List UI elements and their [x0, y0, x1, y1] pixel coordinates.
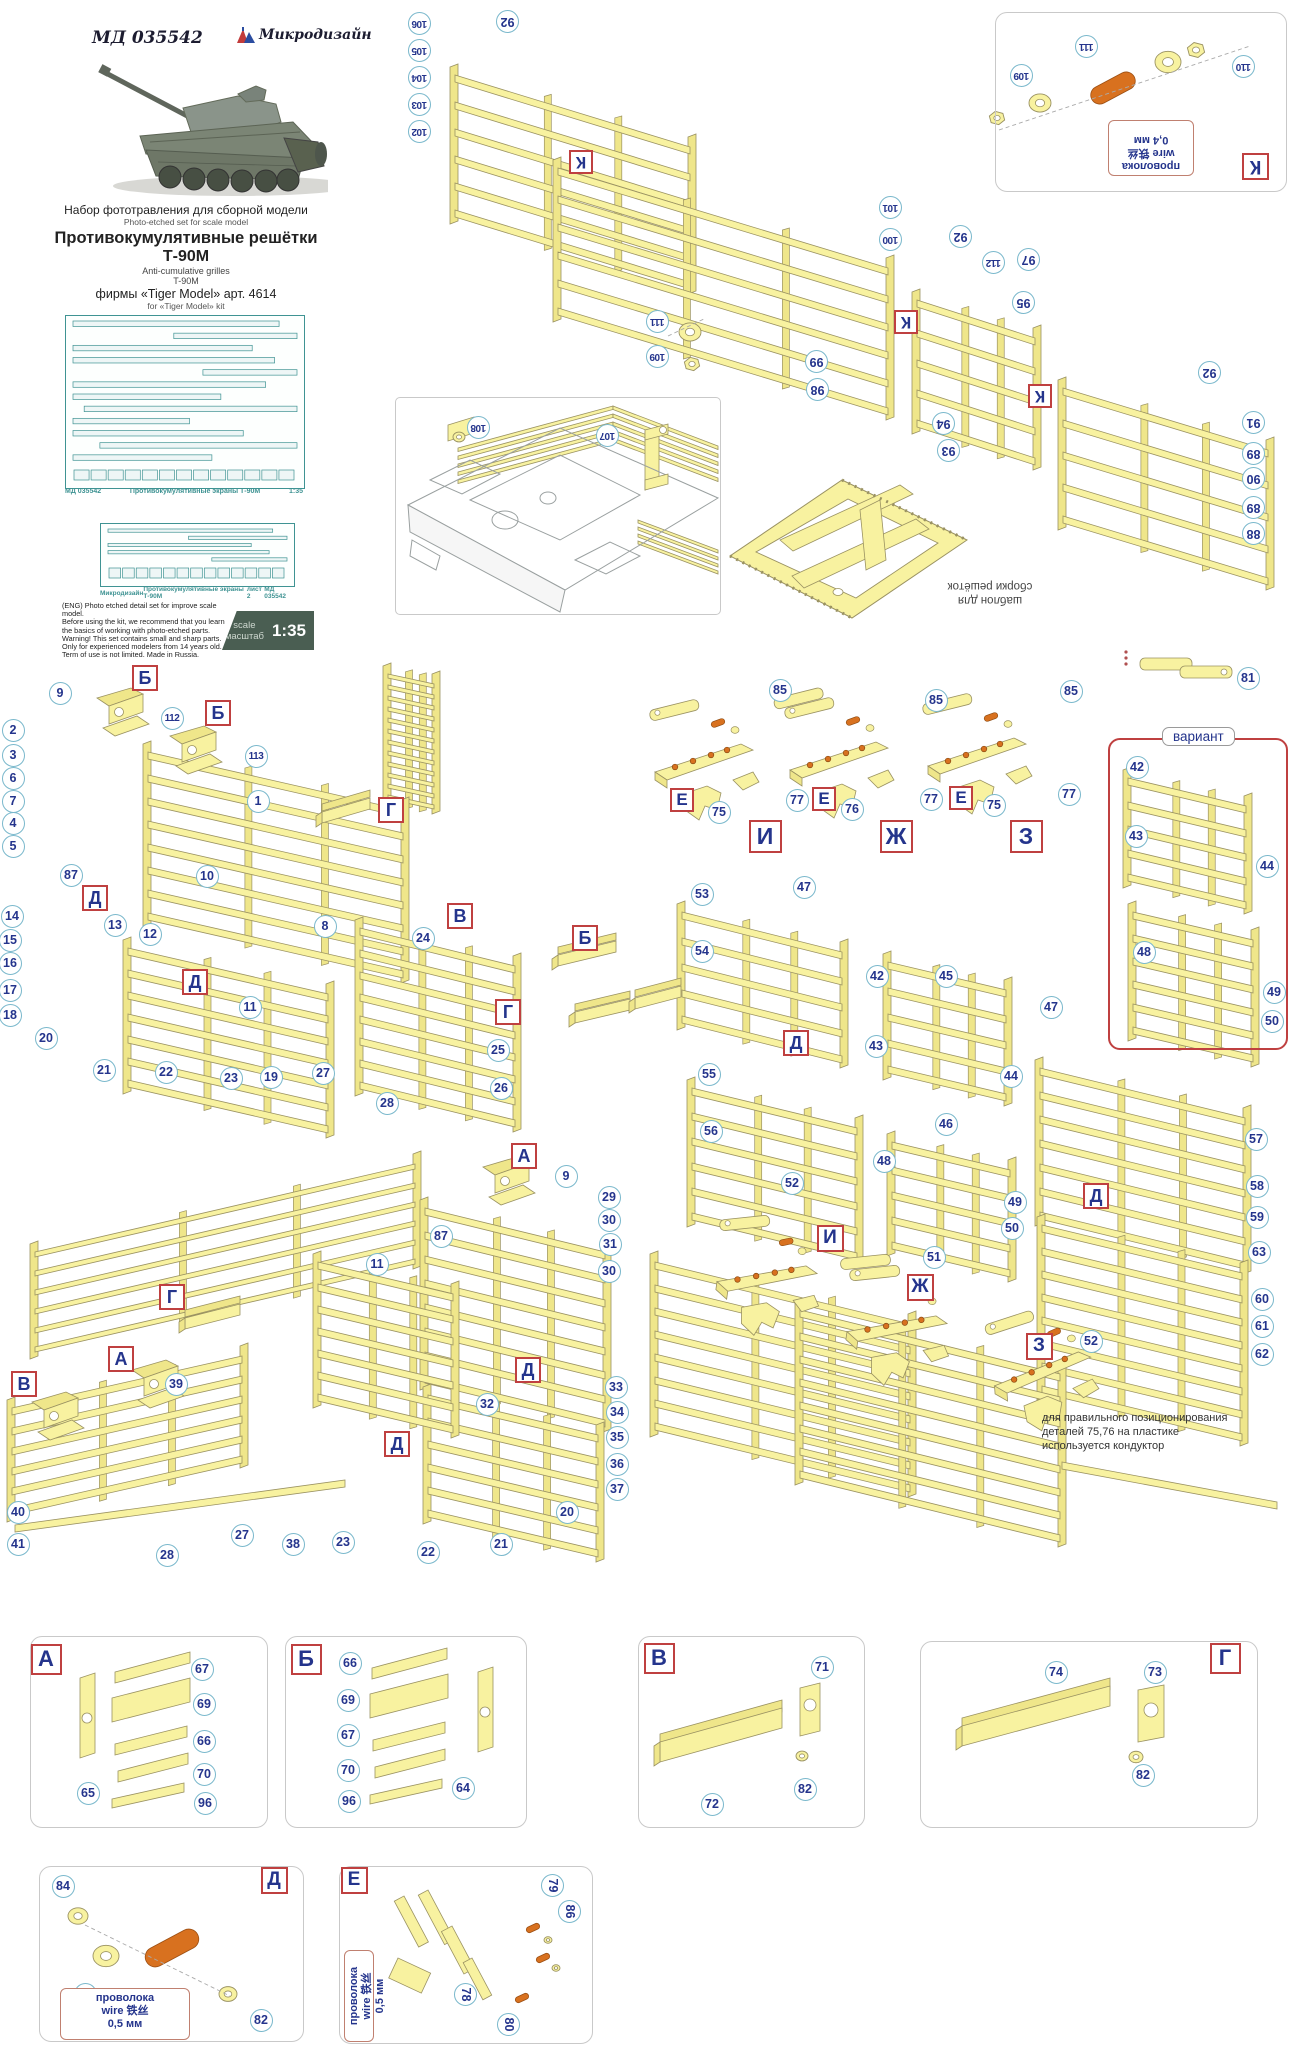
fret-part: [73, 358, 275, 363]
fret-2-code: МД 035542: [264, 586, 293, 600]
part-callout-43: 43: [1125, 825, 1148, 848]
fret-art: [101, 524, 294, 586]
fret-2-sheet: лист 2: [247, 586, 264, 600]
fret-part: [123, 568, 135, 578]
grille-connector: [804, 1107, 811, 1253]
grille-connector: [544, 1414, 551, 1550]
grille-slat: [692, 1138, 857, 1185]
assembly-letter-Е: Е: [949, 786, 973, 810]
part-callout-97: 97: [1017, 248, 1040, 271]
fret-part: [262, 470, 277, 480]
assembly-letter-Г: Г: [1210, 1643, 1241, 1674]
hex-nut: [684, 357, 699, 370]
assembly-letter-В: В: [644, 1643, 675, 1674]
part-callout-112: 112: [161, 707, 184, 730]
part-callout-82: 82: [794, 1778, 817, 1801]
part-callout-61: 61: [1251, 1315, 1274, 1338]
beam-end: [569, 1012, 575, 1027]
part-callout-75: 75: [983, 794, 1006, 817]
part-callout-109: 109: [1010, 64, 1033, 87]
part-shape: [1006, 766, 1032, 784]
fret-part: [142, 470, 157, 480]
part-callout-70: 70: [193, 1763, 216, 1786]
part-callout-27: 27: [312, 1062, 335, 1085]
part-callout-96: 96: [338, 1790, 361, 1813]
part-callout-78: 78: [454, 1983, 477, 2006]
kit-line-ru: фирмы «Tiger Model» арт. 4614: [42, 287, 330, 301]
part-callout-108: 108: [467, 416, 490, 439]
part-callout-59: 59: [1246, 1206, 1269, 1229]
grille-slat: [682, 990, 842, 1037]
fret-part: [228, 470, 243, 480]
tank-photo: [88, 46, 328, 201]
part-callout-42: 42: [1126, 756, 1149, 779]
part-callout-11: 11: [239, 996, 262, 1019]
grille-slat: [888, 1014, 1006, 1049]
part-callout-69: 69: [193, 1693, 216, 1716]
variant-box: [1108, 738, 1288, 1050]
fret-part: [73, 382, 266, 387]
fret-part: [159, 470, 174, 480]
assembly-letter-Е: Е: [341, 1867, 368, 1894]
grille-slat: [1063, 516, 1268, 585]
grille-slat: [1040, 1092, 1245, 1149]
part-callout-21: 21: [490, 1533, 513, 1556]
part-callout-36: 36: [606, 1453, 629, 1476]
grille-assembly: [1035, 1057, 1251, 1274]
part-callout-20: 20: [35, 1027, 58, 1050]
part-callout-106: 106: [408, 12, 431, 35]
part-callout-51: 51: [923, 1246, 946, 1269]
assembly-letter-К: К: [1028, 384, 1052, 408]
fret-part: [109, 568, 121, 578]
part-callout-85: 85: [1060, 680, 1083, 703]
part-callout-89: 89: [1242, 496, 1265, 519]
instruction-sheet: МД 035542 Микродизайн Набор фототравлени…: [0, 0, 1289, 2048]
part-callout-73: 73: [1144, 1661, 1167, 1684]
grille-slat: [1063, 484, 1268, 553]
part-callout-76: 76: [841, 798, 864, 821]
part-callout-93: 93: [937, 439, 960, 462]
assembly-letter-Б: Б: [291, 1644, 322, 1675]
grille-slat: [360, 972, 515, 1017]
fret-part: [211, 470, 226, 480]
part-callout-2: 2: [2, 719, 25, 742]
grille-end-cap: [855, 1115, 863, 1265]
part-callout-28: 28: [376, 1092, 399, 1115]
assembly-letter-Д: Д: [182, 969, 208, 995]
brand-mark-icon: [236, 26, 256, 44]
assembly-letter-В: В: [11, 1371, 37, 1397]
fret-2-brand: Микродизайн: [100, 590, 143, 597]
part-callout-102: 102: [408, 120, 431, 143]
assembly-letter-Д: Д: [384, 1431, 410, 1457]
grille-slat: [888, 1040, 1006, 1075]
assembly-letter-Д: Д: [82, 885, 108, 911]
part-callout-82: 82: [1132, 1764, 1155, 1787]
grille-end-cap: [355, 917, 363, 1096]
part-callout-87: 87: [60, 864, 83, 887]
part-callout-49: 49: [1004, 1191, 1027, 1214]
fret-1-code: МД 035542: [65, 488, 101, 495]
wire-04-label: проволока wire 铁丝 0,4 мм: [1108, 120, 1194, 176]
part-shape: [928, 738, 1026, 774]
part-callout-66: 66: [193, 1730, 216, 1753]
grille-slat: [682, 1016, 842, 1063]
grille-slat: [888, 988, 1006, 1023]
grille-assembly: [15, 1480, 345, 1532]
beam-part: [179, 1296, 240, 1333]
fret-part: [73, 345, 252, 350]
part-callout-50: 50: [1001, 1217, 1024, 1240]
grille-assembly: [1062, 1462, 1277, 1509]
part-callout-79: 79: [541, 1874, 564, 1897]
part-callout-10: 10: [196, 865, 219, 888]
part-callout-19: 19: [260, 1066, 283, 1089]
part-callout-56: 56: [700, 1120, 723, 1143]
part-callout-22: 22: [417, 1541, 440, 1564]
fret-part: [136, 568, 148, 578]
assembly-letter-Е: Е: [670, 788, 694, 812]
assembly-letter-Д: Д: [515, 1357, 541, 1383]
assembly-letter-З: З: [1026, 1333, 1053, 1360]
fret-part: [150, 568, 162, 578]
grille-end-cap: [450, 64, 458, 224]
grille-slat: [360, 994, 515, 1039]
grille-end-cap: [143, 741, 151, 927]
fret-1-title: Противокумулятивные экраны Т-90М: [130, 488, 260, 495]
part-callout-20: 20: [556, 1501, 579, 1524]
part-shape: [868, 770, 894, 788]
assembly-letter-З: З: [1010, 820, 1043, 853]
part-callout-41: 41: [7, 1533, 30, 1556]
grille-assembly: [887, 1131, 1016, 1282]
part-callout-45: 45: [935, 965, 958, 988]
part-callout-63: 63: [1248, 1241, 1271, 1264]
grille-slat: [35, 1202, 415, 1295]
part-callout-69: 69: [337, 1689, 360, 1712]
part-callout-88: 88: [1242, 522, 1265, 545]
part-callout-17: 17: [0, 979, 22, 1002]
part-callout-23: 23: [332, 1531, 355, 1554]
grille-assembly: [677, 901, 848, 1068]
fret-part: [125, 470, 140, 480]
fret-part: [272, 568, 284, 578]
kit-line-en: for «Tiger Model» kit: [42, 301, 330, 311]
fret-part: [218, 568, 230, 578]
grille-slat: [35, 1164, 415, 1257]
product-code: МД 035542: [92, 28, 203, 48]
part-callout-103: 103: [408, 93, 431, 116]
assembly-letter-Ж: Ж: [880, 820, 913, 853]
grille-end-cap: [886, 255, 894, 420]
scale-badge: scale масштаб 1:35: [222, 611, 314, 650]
fret-part: [174, 333, 297, 338]
part-callout-71: 71: [811, 1656, 834, 1679]
assembly-letter-А: А: [511, 1143, 537, 1169]
part-callout-27: 27: [231, 1524, 254, 1547]
part-callout-12: 12: [139, 923, 162, 946]
fret-part: [108, 529, 273, 532]
grille-slat: [1063, 420, 1268, 489]
assembly-letter-А: А: [31, 1644, 62, 1675]
part-callout-48: 48: [873, 1150, 896, 1173]
assembly-letter-И: И: [749, 820, 782, 853]
part-callout-98: 98: [806, 378, 829, 401]
eng-warning-text: (ENG) Photo etched detail set for improv…: [62, 602, 237, 659]
part-callout-77: 77: [920, 788, 943, 811]
wire-05-label: проволока wire 铁丝 0,5 мм: [60, 1988, 190, 2040]
fret-part: [108, 551, 269, 554]
fret-part: [245, 568, 257, 578]
grille-connector: [544, 94, 551, 250]
part-callout-9: 9: [49, 682, 72, 705]
fret-part: [279, 470, 294, 480]
grille-assembly: [1058, 377, 1274, 590]
fret-part: [108, 470, 123, 480]
part-callout-43: 43: [865, 1035, 888, 1058]
part-callout-52: 52: [781, 1172, 804, 1195]
part-callout-95: 95: [1012, 291, 1035, 314]
part-callout-46: 46: [935, 1113, 958, 1136]
part-callout-37: 37: [606, 1478, 629, 1501]
part-callout-87: 87: [430, 1225, 453, 1248]
part-callout-72: 72: [701, 1793, 724, 1816]
part-callout-96: 96: [194, 1792, 217, 1815]
part-callout-58: 58: [1246, 1175, 1269, 1198]
grille-end-cap: [650, 1251, 658, 1437]
hinge-assembly: [1124, 650, 1232, 678]
part-callout-30: 30: [598, 1209, 621, 1232]
assembly-letter-Д: Д: [1083, 1183, 1109, 1209]
beam-end: [552, 955, 558, 970]
part-callout-14: 14: [1, 905, 24, 928]
scale-label-ru: масштаб: [225, 631, 264, 642]
grille-assembly: [30, 1151, 421, 1359]
assembly-letter-Д: Д: [261, 1867, 288, 1894]
grille-connector: [782, 228, 789, 389]
part-callout-67: 67: [191, 1658, 214, 1681]
part-callout-80: 80: [497, 2013, 520, 2036]
part-callout-92: 92: [949, 225, 972, 248]
part-callout-111: 111: [1075, 35, 1098, 58]
fret-1-scale: 1:35: [289, 488, 303, 495]
subtitle-en: Anti-cumulative grilles: [42, 266, 330, 276]
part-callout-31: 31: [599, 1233, 622, 1256]
part-callout-53: 53: [691, 883, 714, 906]
part-callout-85: 85: [769, 679, 792, 702]
part-callout-34: 34: [606, 1401, 629, 1424]
grille-slat: [35, 1183, 415, 1276]
assembly-letter-Д: Д: [783, 1030, 809, 1056]
part-callout-111: 111: [646, 310, 669, 333]
grille-slat: [15, 1480, 345, 1532]
part-callout-33: 33: [605, 1376, 628, 1399]
part-callout-38: 38: [282, 1533, 305, 1556]
fret-part: [108, 543, 251, 546]
grille-end-cap: [30, 1241, 38, 1359]
part-callout-1: 1: [247, 790, 270, 813]
fret-2-caption: Микродизайн Противокумулятивные экраны Т…: [100, 586, 293, 600]
grille-slat: [428, 1441, 598, 1488]
part-callout-75: 75: [708, 801, 731, 824]
assembly-letter-Б: Б: [132, 665, 158, 691]
part-callout-5: 5: [2, 835, 25, 858]
grille-assembly: [123, 937, 334, 1138]
bracket-part: [97, 688, 149, 736]
part-callout-62: 62: [1251, 1343, 1274, 1366]
grille-assembly: [912, 289, 1041, 470]
assembly-letter-Б: Б: [572, 925, 598, 951]
grille-end-cap: [687, 1077, 695, 1227]
wire-05-label-vertical: проволока wire 铁丝 0,5 мм: [344, 1950, 374, 2042]
fret-part: [177, 568, 189, 578]
part-callout-23: 23: [220, 1067, 243, 1090]
grille-assembly: [383, 663, 440, 814]
part-callout-109: 109: [646, 345, 669, 368]
part-callout-18: 18: [0, 1004, 22, 1027]
fret-part: [212, 558, 287, 561]
part-callout-52: 52: [1080, 1330, 1103, 1353]
part-callout-44: 44: [1256, 855, 1279, 878]
part-callout-100: 100: [879, 228, 902, 251]
part-callout-99: 99: [805, 350, 828, 373]
grille-slat: [558, 280, 888, 387]
grille-slat: [1063, 452, 1268, 521]
fret-sheet-1: [65, 315, 305, 489]
grille-slat: [558, 252, 888, 359]
fret-sheet-2: [100, 523, 295, 587]
jig-note: для правильного позиционирования деталей…: [1042, 1412, 1277, 1453]
fret-2-title: Противокумулятивные экраны Т-90М: [143, 586, 247, 600]
fret-part: [84, 406, 297, 411]
part-callout-9: 9: [555, 1165, 578, 1188]
part-callout-55: 55: [698, 1063, 721, 1086]
part-callout-74: 74: [1045, 1661, 1068, 1684]
beam-part: [629, 978, 681, 1013]
fret-1-caption: МД 035542 Противокумулятивные экраны Т-9…: [65, 488, 303, 495]
assembly-letter-Г: Г: [378, 797, 404, 823]
part-callout-89: 89: [1242, 442, 1265, 465]
part-callout-7: 7: [2, 790, 25, 813]
part-callout-107: 107: [596, 424, 619, 447]
grille-slat: [558, 224, 888, 331]
assembly-letter-К: К: [1242, 153, 1269, 180]
part-callout-101: 101: [879, 196, 902, 219]
part-callout-64: 64: [452, 1777, 475, 1800]
fret-part: [245, 470, 260, 480]
grille-end-cap: [596, 1422, 604, 1562]
part-callout-104: 104: [408, 66, 431, 89]
part-callout-25: 25: [487, 1039, 510, 1062]
fret-art: [66, 316, 304, 488]
fret-part: [259, 568, 271, 578]
part-callout-29: 29: [598, 1186, 621, 1209]
part-callout-70: 70: [337, 1759, 360, 1782]
part-callout-48: 48: [1133, 941, 1156, 964]
assembly-letter-Г: Г: [159, 1284, 185, 1310]
part-callout-77: 77: [786, 789, 809, 812]
assembly-letter-А: А: [108, 1346, 134, 1372]
part-callout-94: 94: [932, 412, 955, 435]
grille-slat: [1040, 1116, 1245, 1173]
part-callout-4: 4: [2, 812, 25, 835]
grille-slat: [1062, 1462, 1277, 1509]
fret-part: [176, 470, 191, 480]
assembly-letter-Ж: Ж: [907, 1274, 934, 1301]
part-callout-77: 77: [1058, 783, 1081, 806]
fret-part: [163, 568, 175, 578]
assembly-letter-К: К: [569, 150, 593, 174]
fret-part: [100, 443, 297, 448]
part-callout-35: 35: [606, 1426, 629, 1449]
grille-connector: [99, 1380, 106, 1501]
fret-part: [73, 321, 279, 326]
grille-slat: [1040, 1140, 1245, 1197]
part-callout-16: 16: [0, 952, 22, 975]
brand-logo: Микродизайн: [236, 26, 372, 44]
scale-value: 1:35: [272, 621, 306, 641]
header-line-en: Photo-etched set for scale model: [42, 217, 330, 227]
part-callout-90: 90: [1242, 467, 1265, 490]
part-callout-32: 32: [476, 1393, 499, 1416]
assembly-letter-К: К: [894, 310, 918, 334]
part-callout-67: 67: [337, 1724, 360, 1747]
hull-assembly-box: [395, 397, 721, 615]
part-callout-3: 3: [2, 744, 25, 767]
bracket-part: [32, 1392, 84, 1440]
grille-assembly: [553, 157, 894, 420]
part-callout-57: 57: [1245, 1128, 1268, 1151]
fret-part: [232, 568, 244, 578]
template-note: шаблон для сборки решёток: [930, 578, 1050, 607]
part-callout-11: 11: [366, 1253, 389, 1276]
grille-slat: [682, 964, 842, 1011]
part-callout-92: 92: [496, 10, 519, 33]
fret-part: [194, 470, 209, 480]
part-callout-24: 24: [412, 927, 435, 950]
part-callout-82: 82: [250, 2009, 273, 2032]
part-callout-105: 105: [408, 39, 431, 62]
fret-part: [73, 394, 221, 399]
fret-part: [204, 568, 216, 578]
part-callout-26: 26: [490, 1077, 513, 1100]
grille-end-cap: [553, 157, 561, 322]
header-line-ru: Набор фототравления для сборной модели: [42, 203, 330, 217]
grille-assembly: [143, 741, 409, 983]
part-callout-112: 112: [982, 251, 1005, 274]
grille-slat: [1040, 1068, 1245, 1125]
grille-end-cap: [795, 1299, 803, 1485]
hinge-assembly: [649, 699, 759, 820]
grille-connector: [293, 1184, 300, 1298]
assembly-letter-И: И: [817, 1225, 844, 1252]
part-shape: [790, 742, 888, 778]
part-callout-39: 39: [165, 1373, 188, 1396]
subtitle-model: T-90M: [42, 276, 330, 286]
beam-part: [569, 991, 630, 1027]
part-callout-50: 50: [1261, 1010, 1284, 1033]
part-callout-6: 6: [2, 767, 25, 790]
part-callout-65: 65: [77, 1782, 100, 1805]
fret-part: [73, 418, 189, 423]
part-callout-15: 15: [0, 929, 22, 952]
part-callout-21: 21: [93, 1059, 116, 1082]
fret-part: [189, 536, 287, 539]
part-callout-22: 22: [155, 1061, 178, 1084]
grille-slat: [1063, 388, 1268, 457]
part-callout-60: 60: [1251, 1288, 1274, 1311]
